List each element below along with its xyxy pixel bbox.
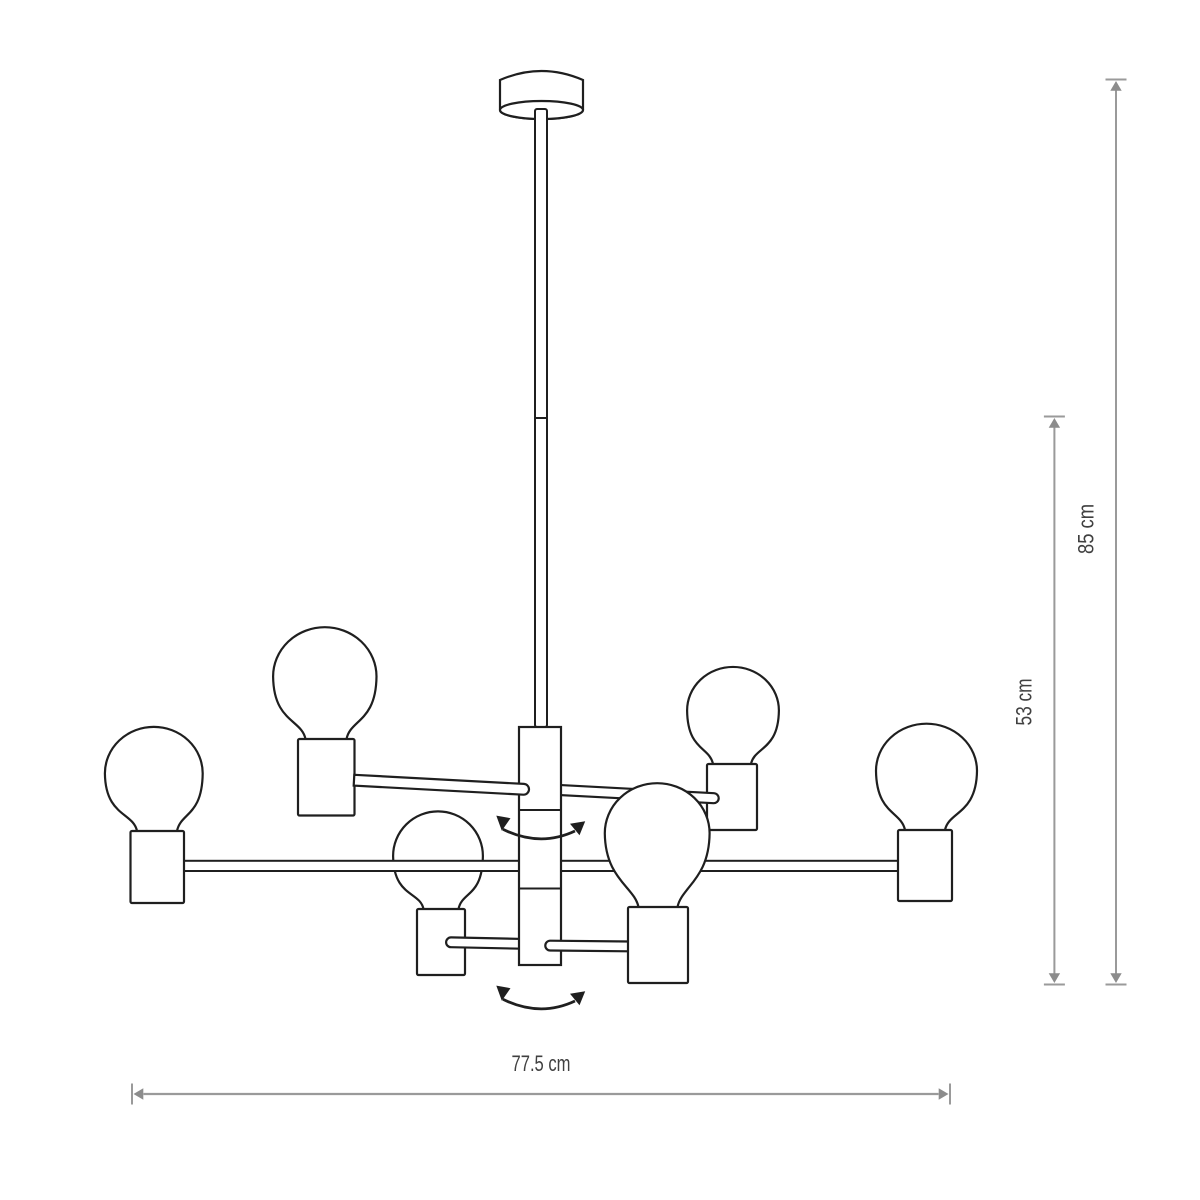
svg-text:77.5 cm: 77.5 cm [512,1051,571,1076]
svg-text:85 cm: 85 cm [1074,504,1099,554]
svg-text:53 cm: 53 cm [1012,679,1037,726]
